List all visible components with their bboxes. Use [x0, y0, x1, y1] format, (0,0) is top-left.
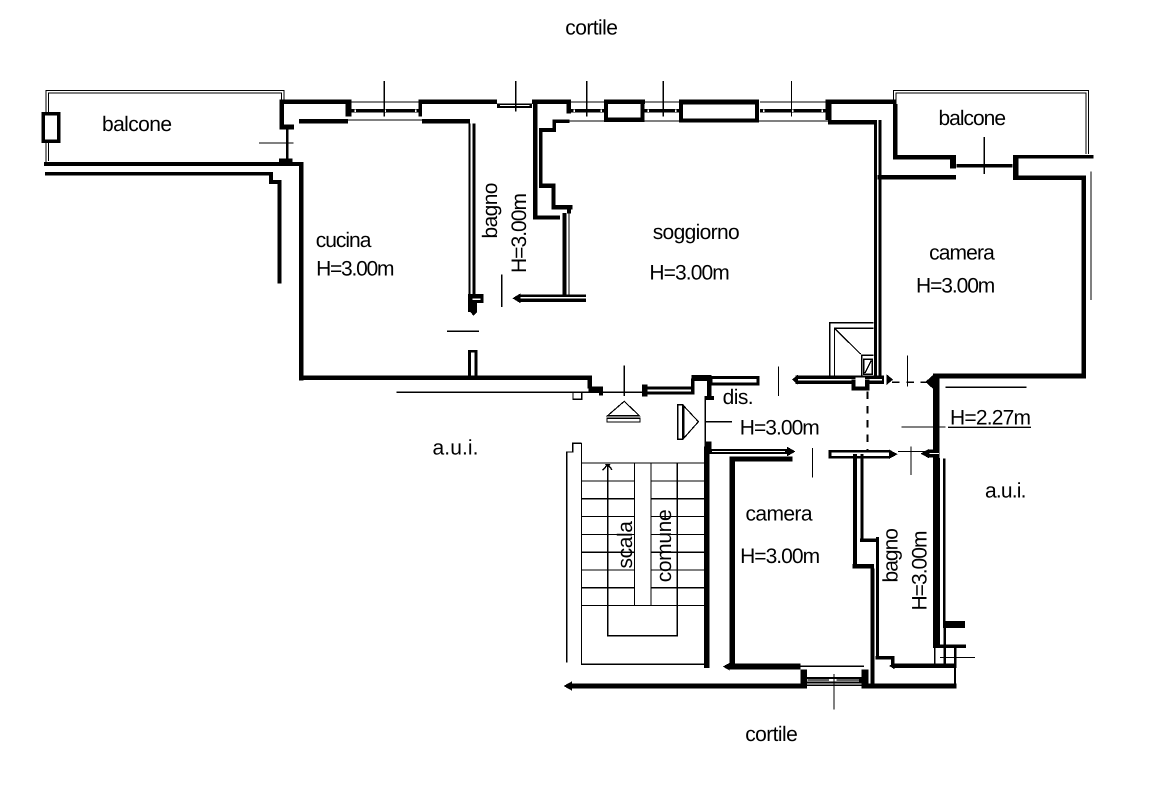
svg-text:H=3.00m: H=3.00m: [740, 417, 820, 440]
svg-text:H=3.00m: H=3.00m: [508, 193, 531, 273]
svg-text:a.u.i.: a.u.i.: [433, 436, 479, 459]
svg-text:cucina: cucina: [316, 229, 372, 252]
svg-text:H=3.00m: H=3.00m: [740, 545, 820, 568]
svg-text:cortile: cortile: [565, 17, 618, 40]
svg-text:cortile: cortile: [745, 723, 798, 746]
svg-text:a.u.i.: a.u.i.: [985, 480, 1027, 503]
svg-text:dis.: dis.: [723, 386, 754, 409]
svg-text:balcone: balcone: [102, 113, 172, 136]
svg-text:balcone: balcone: [939, 107, 1007, 130]
svg-text:H=3.00m: H=3.00m: [649, 261, 729, 284]
svg-text:H=3.00m: H=3.00m: [909, 531, 932, 611]
svg-text:bagno: bagno: [479, 183, 502, 239]
svg-text:H=2.27m: H=2.27m: [950, 407, 1031, 430]
svg-text:comune: comune: [653, 509, 676, 582]
svg-text:soggiorno: soggiorno: [653, 221, 740, 244]
svg-text:camera: camera: [929, 242, 995, 265]
svg-text:camera: camera: [746, 503, 813, 526]
svg-text:scala: scala: [614, 521, 637, 569]
svg-text:H=3.00m: H=3.00m: [916, 274, 995, 297]
svg-text:bagno: bagno: [880, 528, 903, 583]
svg-text:H=3.00m: H=3.00m: [316, 258, 394, 281]
